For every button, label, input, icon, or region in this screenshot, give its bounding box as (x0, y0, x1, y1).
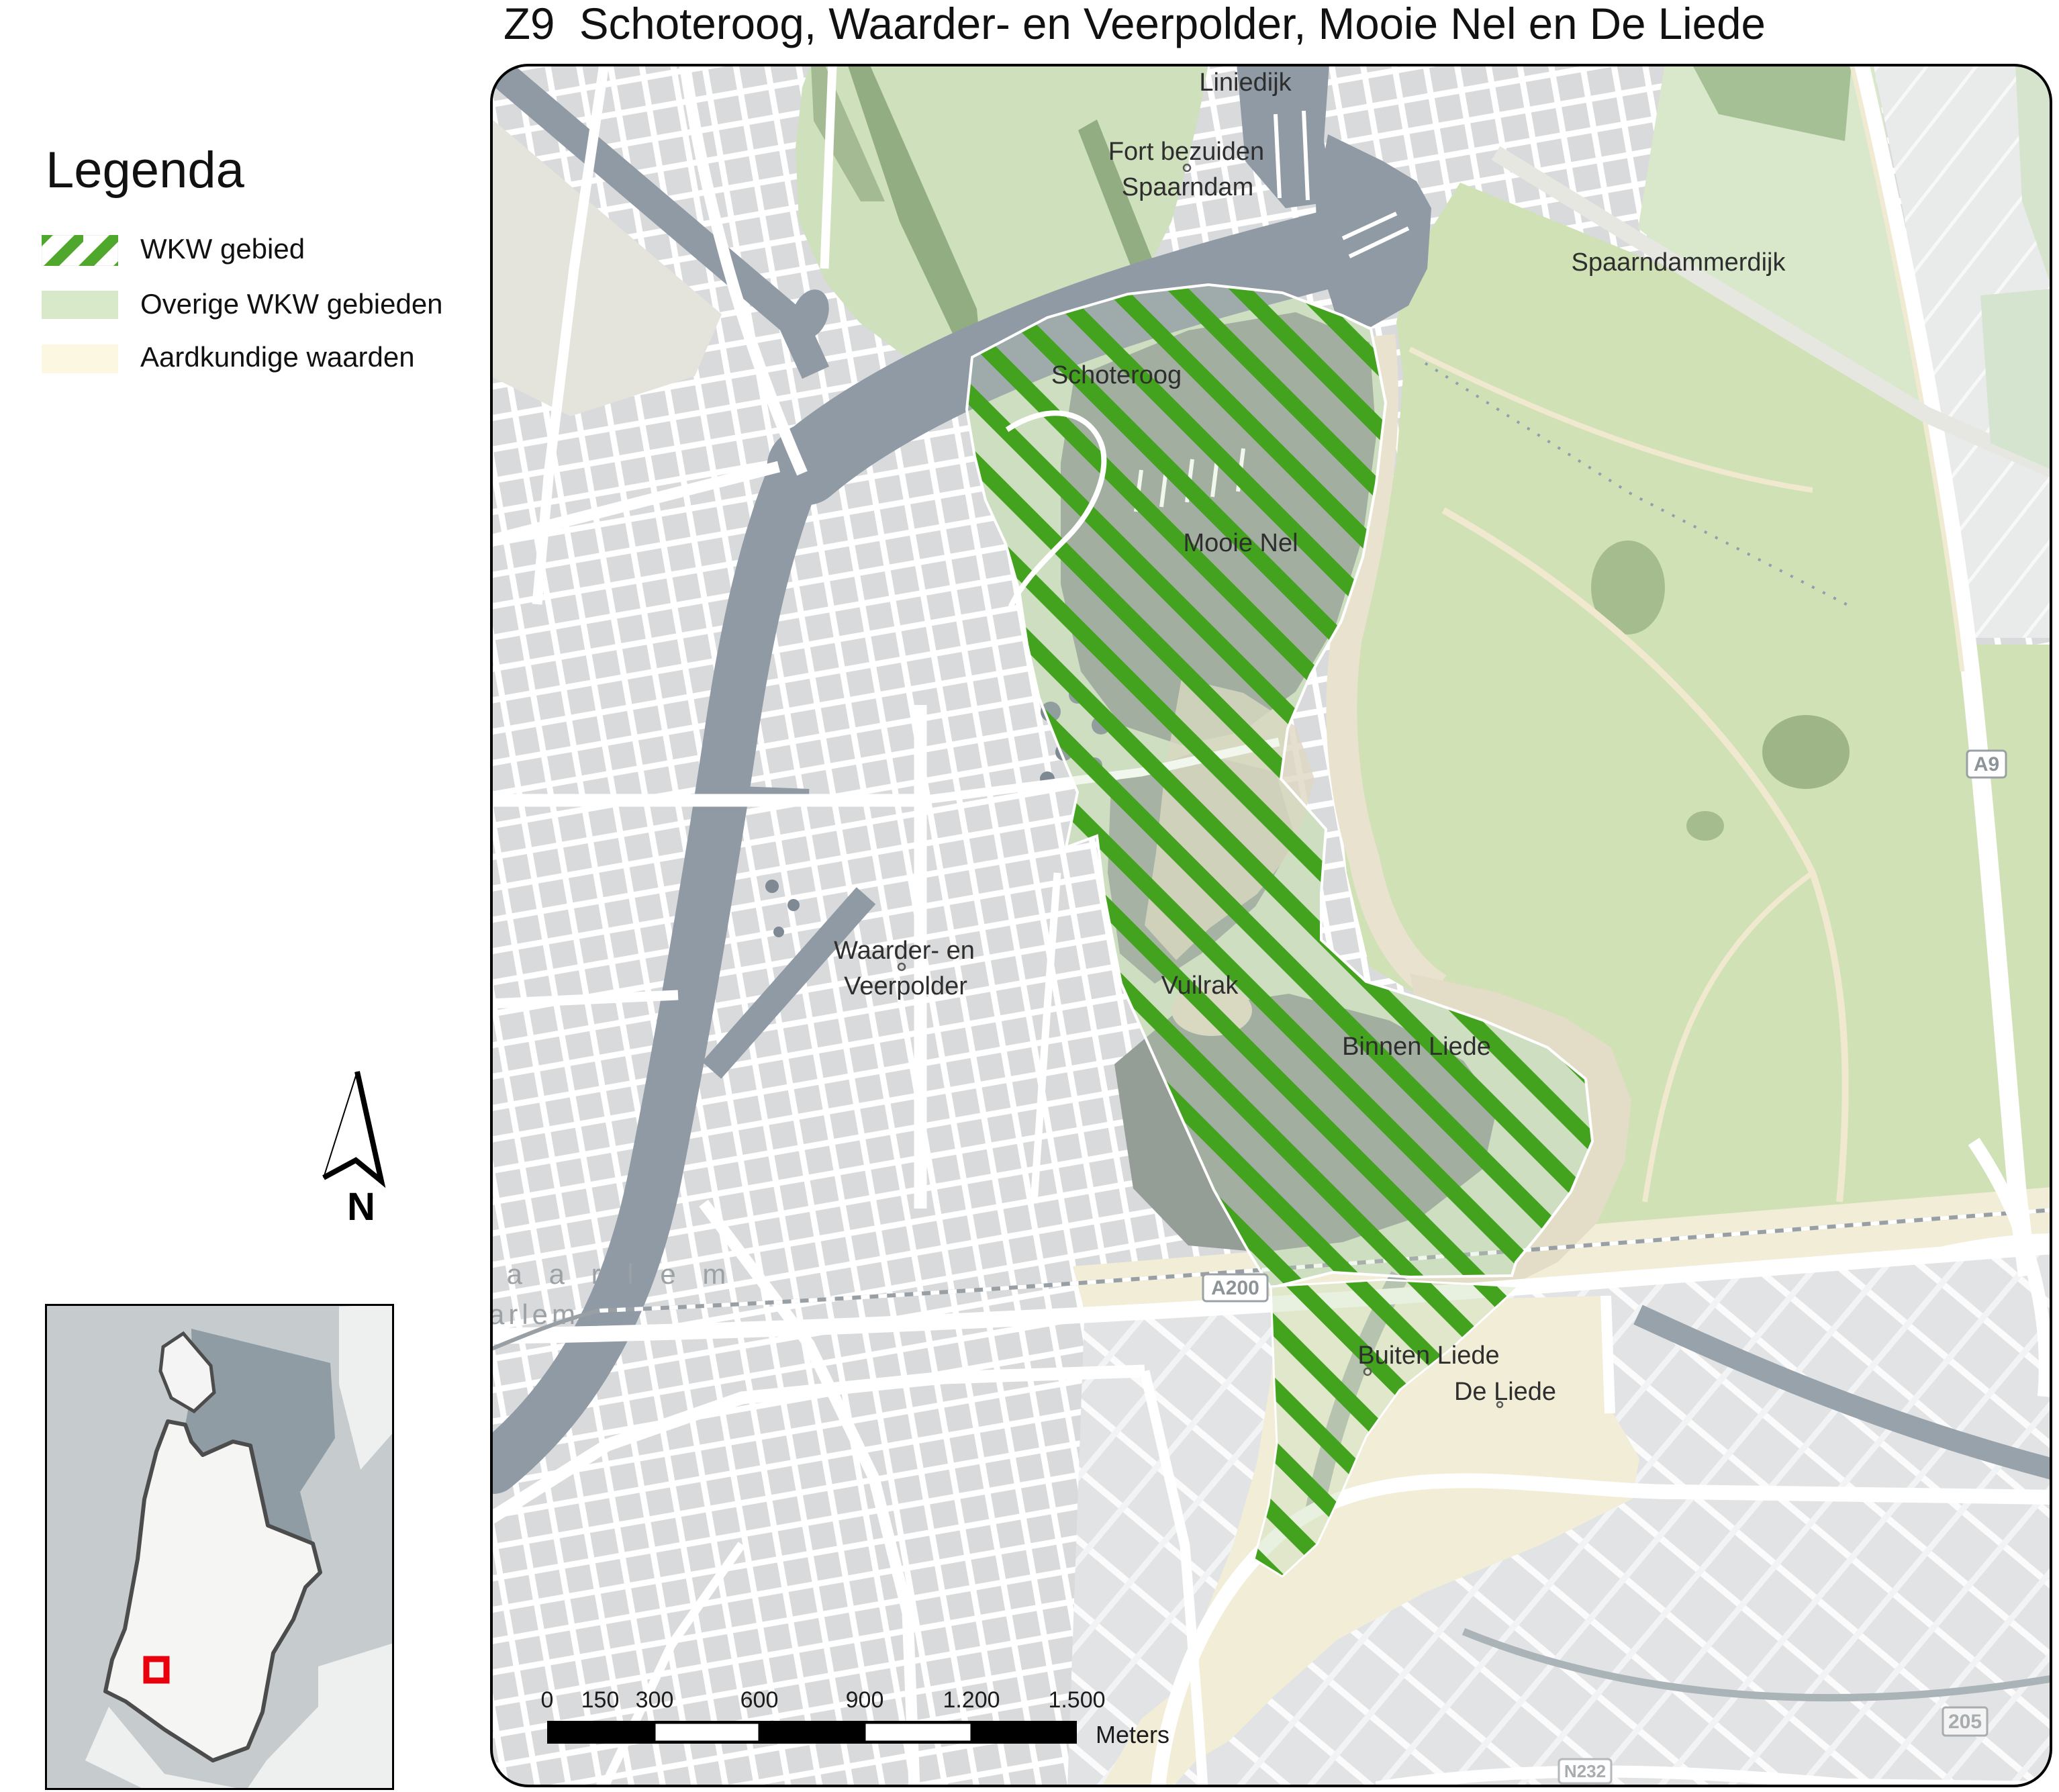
svg-text:900: 900 (846, 1687, 884, 1713)
svg-text:Waarder- en: Waarder- en (834, 937, 975, 965)
svg-text:De Liede: De Liede (1454, 1378, 1556, 1406)
svg-text:Spaarndammerdijk: Spaarndammerdijk (1572, 248, 1786, 277)
svg-text:Fort bezuiden: Fort bezuiden (1108, 138, 1264, 166)
svg-text:H a a r l e m: H a a r l e m (490, 1258, 735, 1290)
svg-text:Mooie Nel: Mooie Nel (1183, 529, 1298, 557)
svg-text:A200: A200 (1211, 1277, 1259, 1299)
svg-text:600: 600 (740, 1687, 779, 1713)
svg-text:Liniedijk: Liniedijk (1199, 68, 1292, 97)
svg-text:N: N (347, 1185, 375, 1229)
svg-text:205: 205 (1948, 1711, 1982, 1733)
svg-text:Schoteroog: Schoteroog (1051, 361, 1182, 389)
svg-text:Meters: Meters (1096, 1721, 1169, 1748)
svg-text:Binnen Liede: Binnen Liede (1342, 1033, 1491, 1061)
svg-text:Veerpolder: Veerpolder (844, 972, 967, 1000)
svg-text:1.500: 1.500 (1048, 1687, 1105, 1713)
svg-text:300: 300 (636, 1687, 674, 1713)
svg-text:1.200: 1.200 (943, 1687, 1000, 1713)
svg-text:arlem: arlem (490, 1299, 579, 1330)
svg-text:N232: N232 (1564, 1761, 1606, 1781)
svg-text:0: 0 (541, 1687, 554, 1713)
svg-text:Buiten Liede: Buiten Liede (1357, 1341, 1499, 1370)
svg-text:150: 150 (581, 1687, 620, 1713)
svg-text:Vuilrak: Vuilrak (1161, 972, 1239, 1000)
svg-text:A9: A9 (1974, 753, 1999, 775)
svg-text:Spaarndam: Spaarndam (1122, 173, 1253, 201)
